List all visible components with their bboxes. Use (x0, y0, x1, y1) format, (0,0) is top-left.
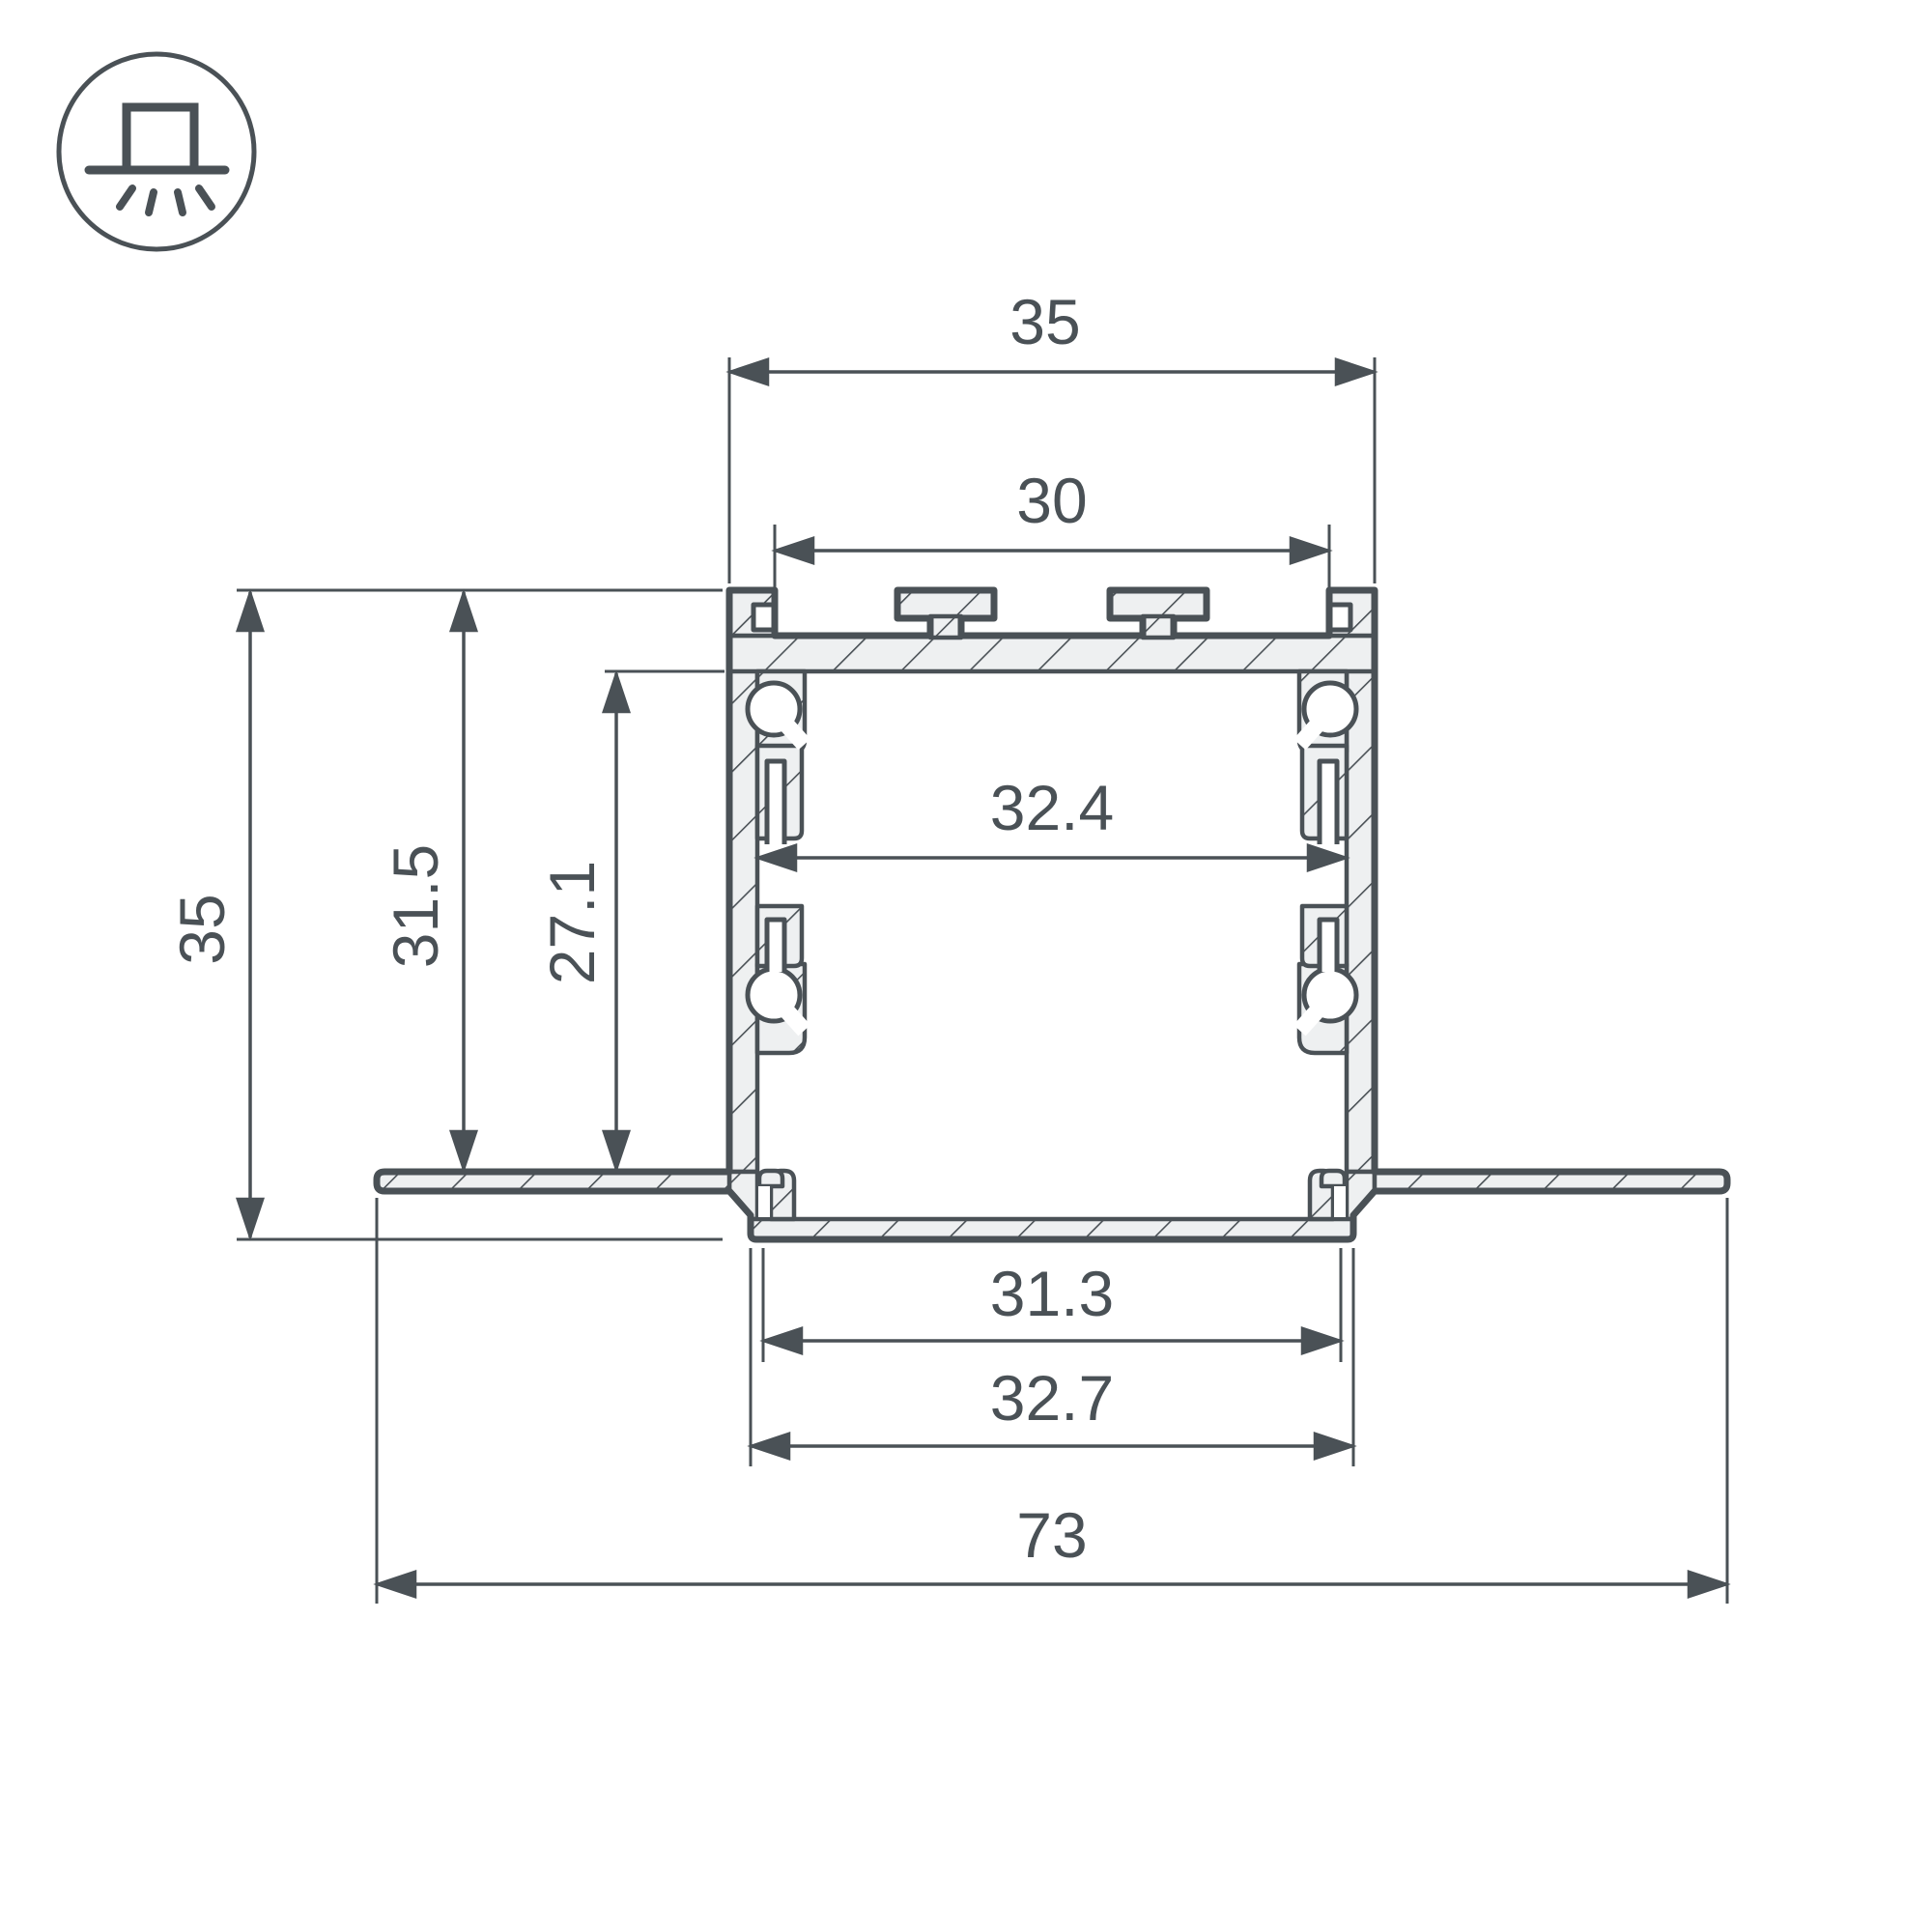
dim-top-opening: 30 (775, 465, 1329, 587)
dim-inner-depth: 27.1 (536, 671, 724, 1170)
right-lower-slot-opening (1320, 920, 1337, 972)
dim-top-width: 35 (729, 286, 1375, 583)
dim-inner-width: 32.4 (757, 772, 1347, 858)
icon-light-rays (120, 188, 212, 213)
dim-bottom-width-label: 32.7 (990, 1362, 1114, 1434)
dimensions: 35 30 32.4 35 31.5 2 (166, 286, 1727, 1604)
dim-top-width-label: 35 (1009, 286, 1080, 357)
right-diffuser-groove (1334, 1186, 1346, 1217)
dim-depth-to-flange-label: 31.5 (380, 844, 451, 968)
icon-circle (59, 54, 254, 249)
dim-overall-height-label: 35 (166, 894, 238, 964)
technical-drawing: 35 30 32.4 35 31.5 2 (0, 0, 1932, 1932)
top-t-ribs (897, 590, 1207, 638)
right-upper-slot-opening (1320, 761, 1337, 844)
profile-voids (748, 605, 1356, 1217)
left-diffuser-groove (758, 1186, 770, 1217)
dim-depth-to-flange: 31.5 (380, 592, 464, 1170)
top-web (729, 636, 1375, 671)
dim-top-opening-label: 30 (1016, 465, 1087, 536)
right-bottom-hook-curl (1321, 1171, 1345, 1186)
recessed-mount-icon (59, 54, 254, 249)
dim-bottom-opening-label: 31.3 (990, 1258, 1114, 1329)
dim-inner-depth-label: 27.1 (536, 861, 608, 984)
icon-fixture-box (127, 107, 194, 167)
dim-bottom-opening: 31.3 (763, 1248, 1341, 1362)
left-upper-slot-opening (767, 761, 784, 844)
left-lower-slot-opening (767, 920, 784, 972)
left-bottom-hook-curl (759, 1171, 782, 1186)
dim-inner-width-label: 32.4 (990, 772, 1114, 843)
dim-overall-width-label: 73 (1016, 1499, 1087, 1571)
